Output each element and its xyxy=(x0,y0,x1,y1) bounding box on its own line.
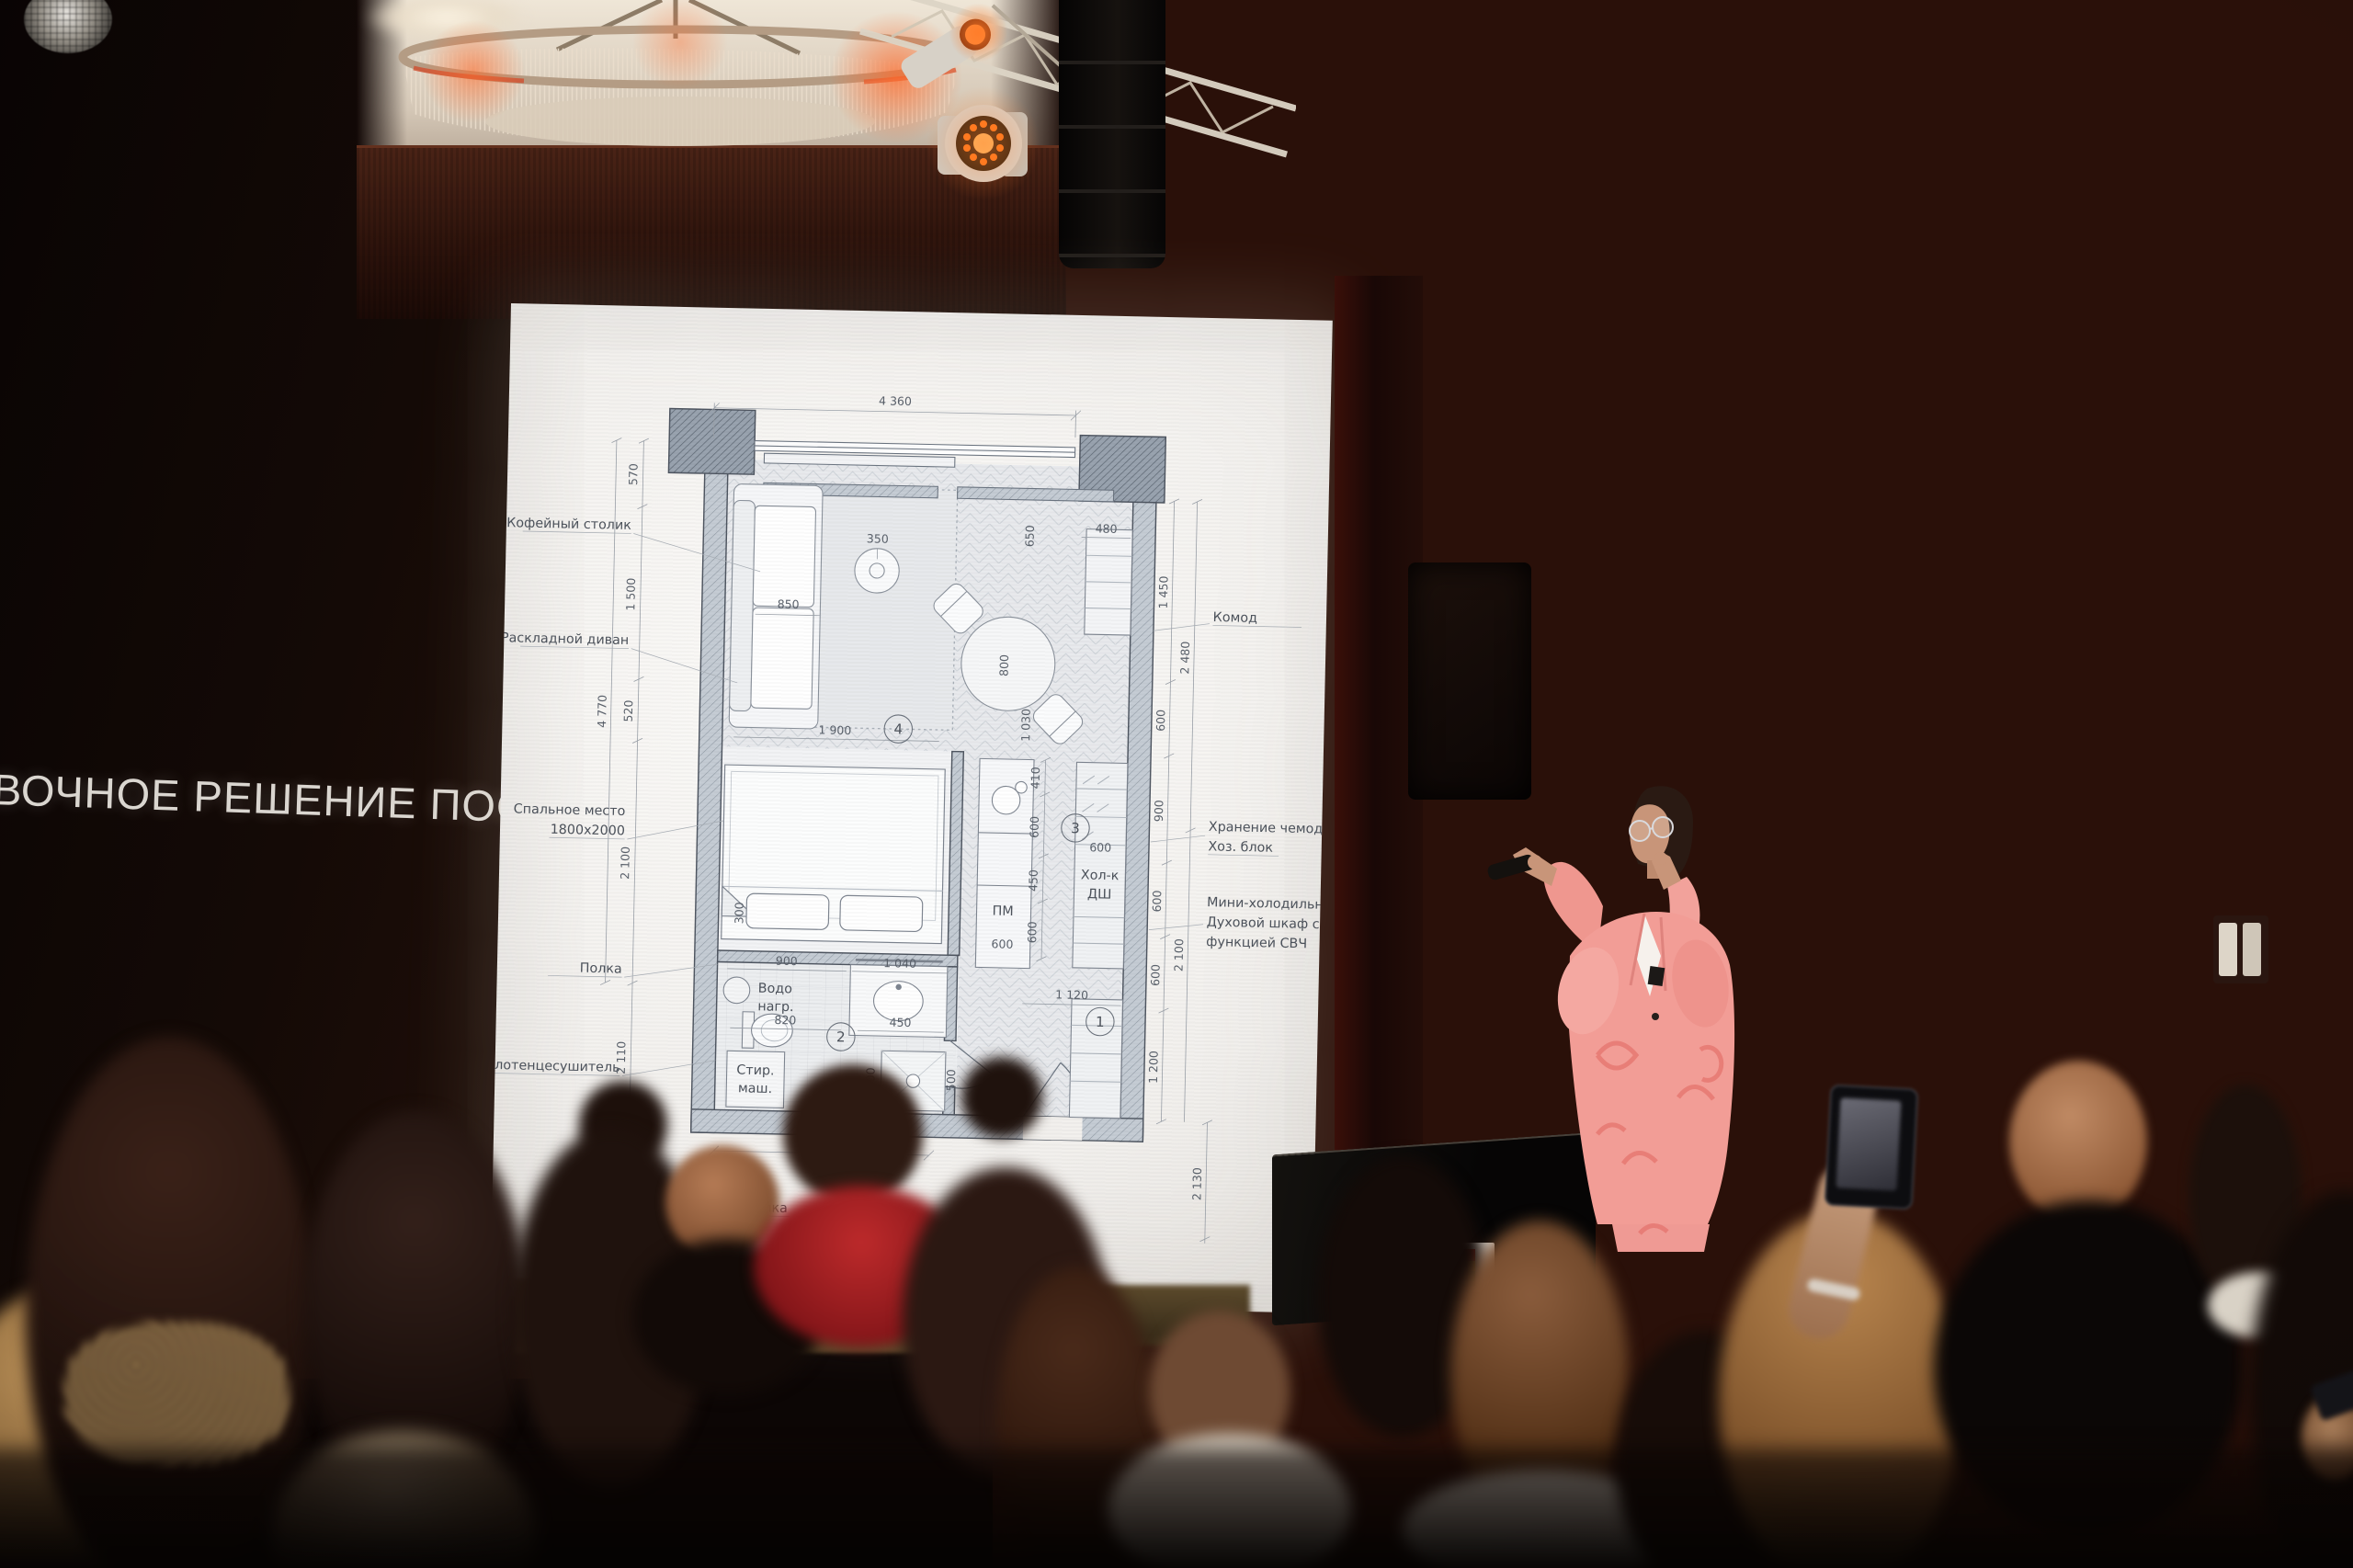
light-switch xyxy=(2219,923,2237,976)
moving-head-light xyxy=(926,86,1040,200)
presenter-badge xyxy=(1648,966,1665,986)
light-switch xyxy=(2243,923,2261,976)
leopard-scarf xyxy=(64,1322,289,1465)
audience-bottom-mass xyxy=(0,1449,2353,1568)
chandelier-bottom-disc xyxy=(485,97,875,146)
conference-photo: ВОЧНОЕ РЕШЕНИЕ ПОСЛЕ xyxy=(0,0,2353,1568)
speaker-column xyxy=(1059,0,1165,268)
presenter-button xyxy=(1652,1013,1659,1020)
smartphone-screen xyxy=(1836,1097,1901,1190)
chandelier-glow xyxy=(422,20,525,123)
spot-light-fixture xyxy=(891,0,1018,102)
wall-speaker-box xyxy=(1408,562,1531,800)
audience-head xyxy=(783,1064,923,1204)
bald-man-head xyxy=(2009,1061,2147,1222)
presenter xyxy=(1460,774,1772,1252)
audience-head xyxy=(961,1057,1042,1138)
